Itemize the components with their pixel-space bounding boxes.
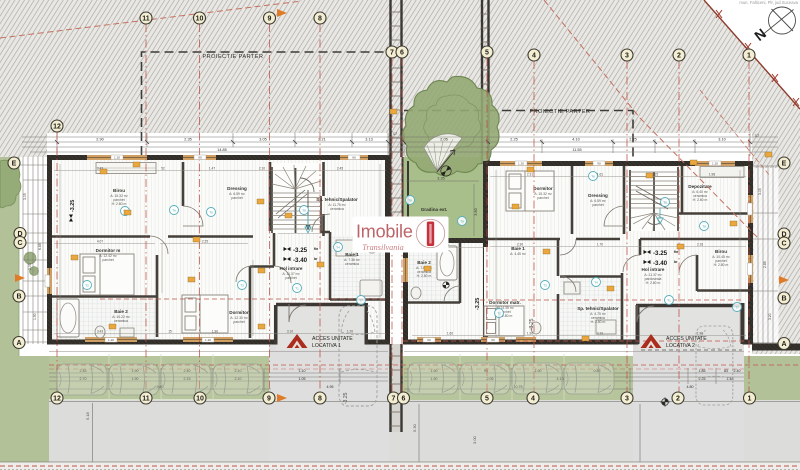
- svg-text:1.60: 1.60: [447, 332, 453, 336]
- svg-text:parchet: parchet: [285, 276, 296, 280]
- svg-text:-3.40: -3.40: [293, 257, 308, 264]
- svg-text:10: 10: [196, 396, 204, 403]
- svg-text:H: 2.80 m: H: 2.80 m: [112, 202, 127, 206]
- svg-text:-3.25: -3.25: [343, 392, 349, 404]
- svg-text:1.30: 1.30: [527, 332, 533, 336]
- svg-text:H: 2.80 m: H: 2.80 m: [693, 198, 708, 202]
- svg-text:12: 12: [53, 124, 61, 131]
- svg-text:T8: T8: [408, 199, 412, 203]
- svg-text:T4: T4: [336, 246, 340, 250]
- svg-text:1.10: 1.10: [299, 369, 306, 373]
- svg-text:E: E: [12, 161, 17, 168]
- svg-text:H: 2.80 m: H: 2.80 m: [646, 281, 661, 285]
- svg-text:2.05: 2.05: [440, 138, 447, 142]
- svg-text:T9: T9: [302, 209, 306, 213]
- svg-text:3.00: 3.00: [472, 435, 477, 444]
- svg-text:LOCATIVA 1: LOCATIVA 1: [312, 343, 341, 349]
- svg-text:ceramica: ceramica: [345, 262, 359, 266]
- svg-text:T5: T5: [209, 211, 213, 215]
- svg-text:fin: fin: [674, 250, 678, 254]
- svg-text:15: 15: [168, 330, 172, 334]
- svg-text:5.30: 5.30: [412, 423, 417, 432]
- svg-text:N: N: [751, 25, 769, 44]
- svg-text:83: 83: [724, 369, 728, 373]
- svg-text:52: 52: [161, 167, 165, 171]
- svg-text:A: A: [16, 340, 21, 347]
- svg-text:9: 9: [267, 396, 271, 403]
- svg-text:ceramica: ceramica: [330, 207, 344, 211]
- svg-text:A: 4.45 m²: A: 4.45 m²: [510, 252, 527, 256]
- svg-text:2.05: 2.05: [28, 263, 32, 270]
- svg-text:Dormitor matr.: Dormitor matr.: [489, 300, 521, 305]
- svg-text:1.20: 1.20: [518, 162, 524, 166]
- svg-text:PROIECTIE PARTER: PROIECTIE PARTER: [530, 109, 591, 115]
- svg-text:10: 10: [196, 16, 204, 23]
- svg-text:8: 8: [318, 396, 322, 403]
- svg-text:4: 4: [531, 396, 535, 403]
- svg-text:2.90: 2.90: [96, 138, 103, 142]
- svg-text:2: 2: [677, 53, 681, 60]
- svg-text:3: 3: [625, 396, 629, 403]
- svg-text:ACCES UNITATE: ACCES UNITATE: [666, 336, 707, 342]
- svg-text:1.85: 1.85: [699, 369, 706, 373]
- svg-text:Dormitor: Dormitor: [229, 310, 249, 315]
- svg-text:H: 2.80 m: H: 2.80 m: [714, 263, 729, 267]
- svg-text:parchet: parchet: [537, 196, 548, 200]
- svg-text:9: 9: [268, 16, 272, 23]
- svg-text:3.05: 3.05: [259, 138, 266, 142]
- svg-text:3.20: 3.20: [768, 313, 772, 320]
- svg-text:1.20: 1.20: [205, 338, 211, 342]
- svg-text:6: 6: [400, 50, 404, 57]
- svg-text:7: 7: [392, 396, 396, 403]
- svg-text:3.10: 3.10: [718, 138, 725, 142]
- svg-text:90: 90: [198, 156, 202, 160]
- svg-text:fin: fin: [314, 247, 318, 251]
- svg-text:A: A: [781, 341, 786, 348]
- svg-text:2.10: 2.10: [259, 167, 265, 171]
- svg-text:Sp. tehnic/Spalator: Sp. tehnic/Spalator: [577, 306, 619, 311]
- svg-text:1.20: 1.20: [712, 162, 718, 166]
- svg-text:6: 6: [402, 396, 406, 403]
- svg-text:2.25: 2.25: [202, 240, 208, 244]
- svg-text:7: 7: [390, 50, 394, 57]
- svg-text:Gradina ext.: Gradina ext.: [421, 207, 448, 212]
- svg-text:Birou: Birou: [715, 249, 727, 254]
- svg-text:11.55: 11.55: [572, 148, 581, 152]
- svg-text:2: 2: [676, 396, 680, 403]
- svg-text:Baie 2: Baie 2: [417, 260, 431, 265]
- svg-text:Transilvania: Transilvania: [362, 243, 403, 252]
- svg-text:14.85: 14.85: [217, 148, 227, 152]
- svg-text:parchet: parchet: [102, 258, 113, 262]
- svg-text:parchet: parchet: [233, 320, 244, 324]
- svg-text:4.07: 4.07: [97, 240, 103, 244]
- svg-text:3.13: 3.13: [365, 138, 372, 142]
- svg-text:1.90: 1.90: [33, 313, 37, 320]
- svg-text:4.95: 4.95: [327, 385, 334, 389]
- svg-text:60: 60: [427, 338, 431, 342]
- svg-text:Dormitor m: Dormitor m: [96, 248, 121, 253]
- svg-text:Imobile: Imobile: [356, 222, 413, 242]
- svg-text:17: 17: [755, 134, 759, 138]
- svg-text:12: 12: [53, 396, 61, 403]
- svg-text:Birou: Birou: [113, 188, 125, 193]
- svg-text:Dressing: Dressing: [588, 193, 608, 198]
- svg-text:3.05: 3.05: [23, 193, 27, 200]
- svg-text:2.25: 2.25: [510, 138, 517, 142]
- svg-text:1.20: 1.20: [108, 338, 114, 342]
- svg-text:ceramica: ceramica: [114, 319, 128, 323]
- svg-text:D: D: [17, 231, 22, 238]
- svg-text:2.21: 2.21: [318, 138, 325, 142]
- svg-text:3.35: 3.35: [437, 177, 444, 181]
- svg-text:T1: T1: [667, 299, 671, 303]
- svg-text:mun. Falticeni, Plr, jud.Sucea: mun. Falticeni, Plr, jud.Suceava: [739, 0, 798, 5]
- svg-text:-3.25: -3.25: [70, 200, 76, 212]
- svg-text:1: 1: [747, 53, 751, 60]
- svg-text:17: 17: [393, 132, 397, 136]
- svg-text:-3.25: -3.25: [475, 298, 481, 310]
- svg-text:1.47: 1.47: [209, 167, 215, 171]
- svg-text:C: C: [781, 241, 786, 248]
- svg-text:3.05: 3.05: [758, 188, 762, 195]
- svg-text:PROIECTIE PARTER: PROIECTIE PARTER: [203, 54, 264, 60]
- svg-text:2.25: 2.25: [629, 138, 636, 142]
- svg-text:T3: T3: [543, 284, 547, 288]
- svg-text:B: B: [781, 296, 786, 303]
- svg-text:Baie 2: Baie 2: [114, 309, 128, 314]
- svg-text:Baie 1: Baie 1: [345, 252, 359, 257]
- svg-text:T5: T5: [663, 201, 667, 205]
- svg-text:1.20: 1.20: [114, 156, 120, 160]
- svg-text:11: 11: [142, 16, 150, 23]
- svg-text:LOCATIVA 2: LOCATIVA 2: [666, 343, 695, 349]
- svg-text:3.43: 3.43: [97, 330, 103, 334]
- svg-text:T7: T7: [735, 306, 739, 310]
- svg-text:T7: T7: [359, 299, 363, 303]
- svg-text:1.98: 1.98: [709, 173, 715, 177]
- svg-text:4.10: 4.10: [572, 138, 579, 142]
- svg-text:2.31: 2.31: [527, 173, 533, 177]
- svg-text:C: C: [17, 240, 22, 247]
- svg-text:5: 5: [485, 50, 489, 57]
- svg-text:T9: T9: [460, 220, 464, 224]
- svg-text:8: 8: [318, 16, 322, 23]
- svg-text:Hol intrare: Hol intrare: [280, 266, 303, 271]
- svg-text:T6: T6: [591, 175, 595, 179]
- svg-text:Baie 1: Baie 1: [511, 246, 525, 251]
- svg-text:5.18: 5.18: [85, 411, 90, 420]
- svg-text:H: 2.80 m: H: 2.80 m: [417, 274, 432, 278]
- svg-text:90: 90: [597, 162, 601, 166]
- svg-text:-3.25: -3.25: [653, 250, 668, 257]
- svg-text:2.45: 2.45: [337, 167, 343, 171]
- svg-text:parchet: parchet: [592, 203, 603, 207]
- svg-text:4.80: 4.80: [687, 385, 694, 389]
- svg-text:parchet: parchet: [231, 196, 242, 200]
- svg-text:11: 11: [142, 396, 150, 403]
- svg-text:1.70: 1.70: [597, 243, 603, 247]
- svg-text:3: 3: [625, 53, 629, 60]
- svg-text:1.90: 1.90: [212, 330, 218, 334]
- svg-text:B: B: [16, 294, 21, 301]
- svg-text:E: E: [782, 161, 787, 168]
- svg-text:T8: T8: [702, 225, 706, 229]
- svg-text:T1: T1: [295, 287, 299, 291]
- svg-text:T2: T2: [497, 312, 501, 316]
- svg-text:T3: T3: [240, 284, 244, 288]
- svg-text:Hol intrare: Hol intrare: [642, 267, 665, 272]
- svg-text:Dormitor: Dormitor: [533, 186, 553, 191]
- svg-text:6.85: 6.85: [38, 243, 42, 250]
- svg-text:1.05: 1.05: [299, 377, 306, 381]
- svg-text:2.10: 2.10: [597, 332, 603, 336]
- svg-text:ACCES UNITATE: ACCES UNITATE: [312, 336, 353, 342]
- svg-text:1.20: 1.20: [347, 330, 353, 334]
- svg-text:2.18: 2.18: [697, 243, 703, 247]
- svg-text:2.85: 2.85: [763, 261, 767, 268]
- svg-text:T4: T4: [594, 281, 598, 285]
- svg-text:D: D: [781, 232, 786, 239]
- svg-text:4: 4: [532, 53, 536, 60]
- svg-text:T2: T2: [85, 284, 89, 288]
- svg-text:-3.25: -3.25: [293, 247, 308, 254]
- svg-text:2.40: 2.40: [734, 369, 741, 373]
- svg-text:-3.40: -3.40: [653, 260, 668, 267]
- svg-text:2.30: 2.30: [517, 243, 523, 247]
- svg-text:3.80: 3.80: [474, 208, 478, 215]
- svg-text:Dressing: Dressing: [227, 186, 247, 191]
- svg-text:1: 1: [748, 396, 752, 403]
- svg-text:5: 5: [485, 396, 489, 403]
- svg-text:3.10: 3.10: [287, 330, 293, 334]
- svg-text:60: 60: [491, 338, 495, 342]
- svg-text:H: 2.80 m: H: 2.80 m: [591, 320, 606, 324]
- svg-text:60: 60: [352, 156, 356, 160]
- svg-text:Sp. tehnic/Spalator: Sp. tehnic/Spalator: [316, 197, 358, 202]
- svg-text:T6: T6: [172, 209, 176, 213]
- svg-text:2.35: 2.35: [184, 138, 191, 142]
